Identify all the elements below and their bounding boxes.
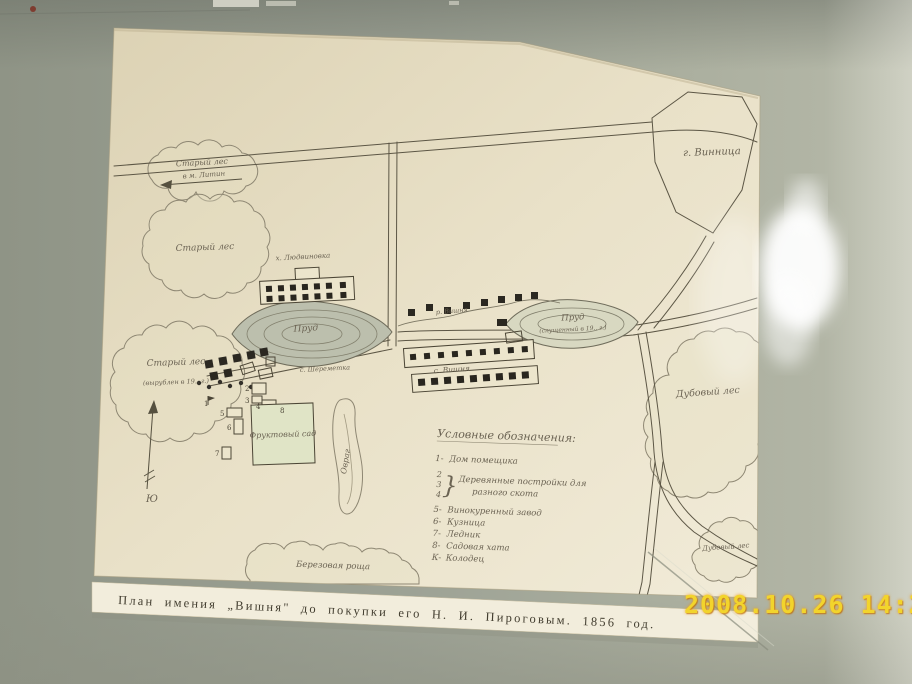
legend-item6: Кузница: [446, 517, 486, 528]
legend-item5-num: 5-: [433, 505, 442, 515]
legend-itemK: Колодец: [445, 553, 485, 564]
legend-itemK-num: К-: [431, 553, 442, 563]
legend-group-4: 4: [435, 490, 441, 499]
label-old-forest-mid: Старый лес: [175, 242, 234, 254]
label-pond-left: Пруд: [292, 323, 318, 334]
glass-glare-top: [788, 179, 824, 231]
plot-number-3: 3: [245, 397, 249, 405]
glass-glare-secondary: [762, 274, 814, 366]
label-south: Ю: [145, 494, 158, 505]
hamlet-main-block: [260, 276, 355, 304]
framed-map-photo: Старый лес в м. Литин Старый лес Старый …: [0, 0, 912, 684]
plot-number-4: 4: [256, 403, 261, 411]
plot-number-1: 1: [204, 400, 208, 408]
legend-item7-num: 7-: [432, 529, 441, 539]
photo-canvas: Старый лес в м. Литин Старый лес Старый …: [0, 0, 912, 684]
legend-item6-num: 6-: [433, 517, 442, 527]
plot-number-7: 7: [215, 450, 219, 458]
camera-timestamp: 2008.10.26 14:24: [684, 590, 912, 619]
legend-item1-num: 1-: [435, 454, 444, 464]
plot-number-5: 5: [220, 410, 224, 418]
legend-item7: Ледник: [445, 529, 481, 540]
legend-group-brace: }: [442, 471, 458, 500]
wall-tag-small: [266, 1, 296, 6]
wall-tag: [213, 0, 259, 7]
map-sheet: [94, 28, 760, 598]
legend-item8-num: 8-: [432, 541, 441, 551]
legend-group-3: 3: [436, 480, 441, 489]
label-city: г. Винница: [683, 146, 741, 159]
label-pond-right: Пруд: [560, 312, 585, 323]
wall-red-dot: [30, 6, 36, 12]
plot-number-8: 8: [280, 407, 284, 415]
plot-number-6: 6: [227, 424, 232, 432]
label-old-forest-low: Старый лес: [146, 357, 205, 369]
glass-light-band: [824, 0, 912, 684]
pond-west-structure: [497, 319, 507, 326]
legend-group-2: 2: [436, 470, 442, 479]
plot-number-2: 2: [245, 385, 249, 393]
wall-speck: [449, 1, 459, 5]
